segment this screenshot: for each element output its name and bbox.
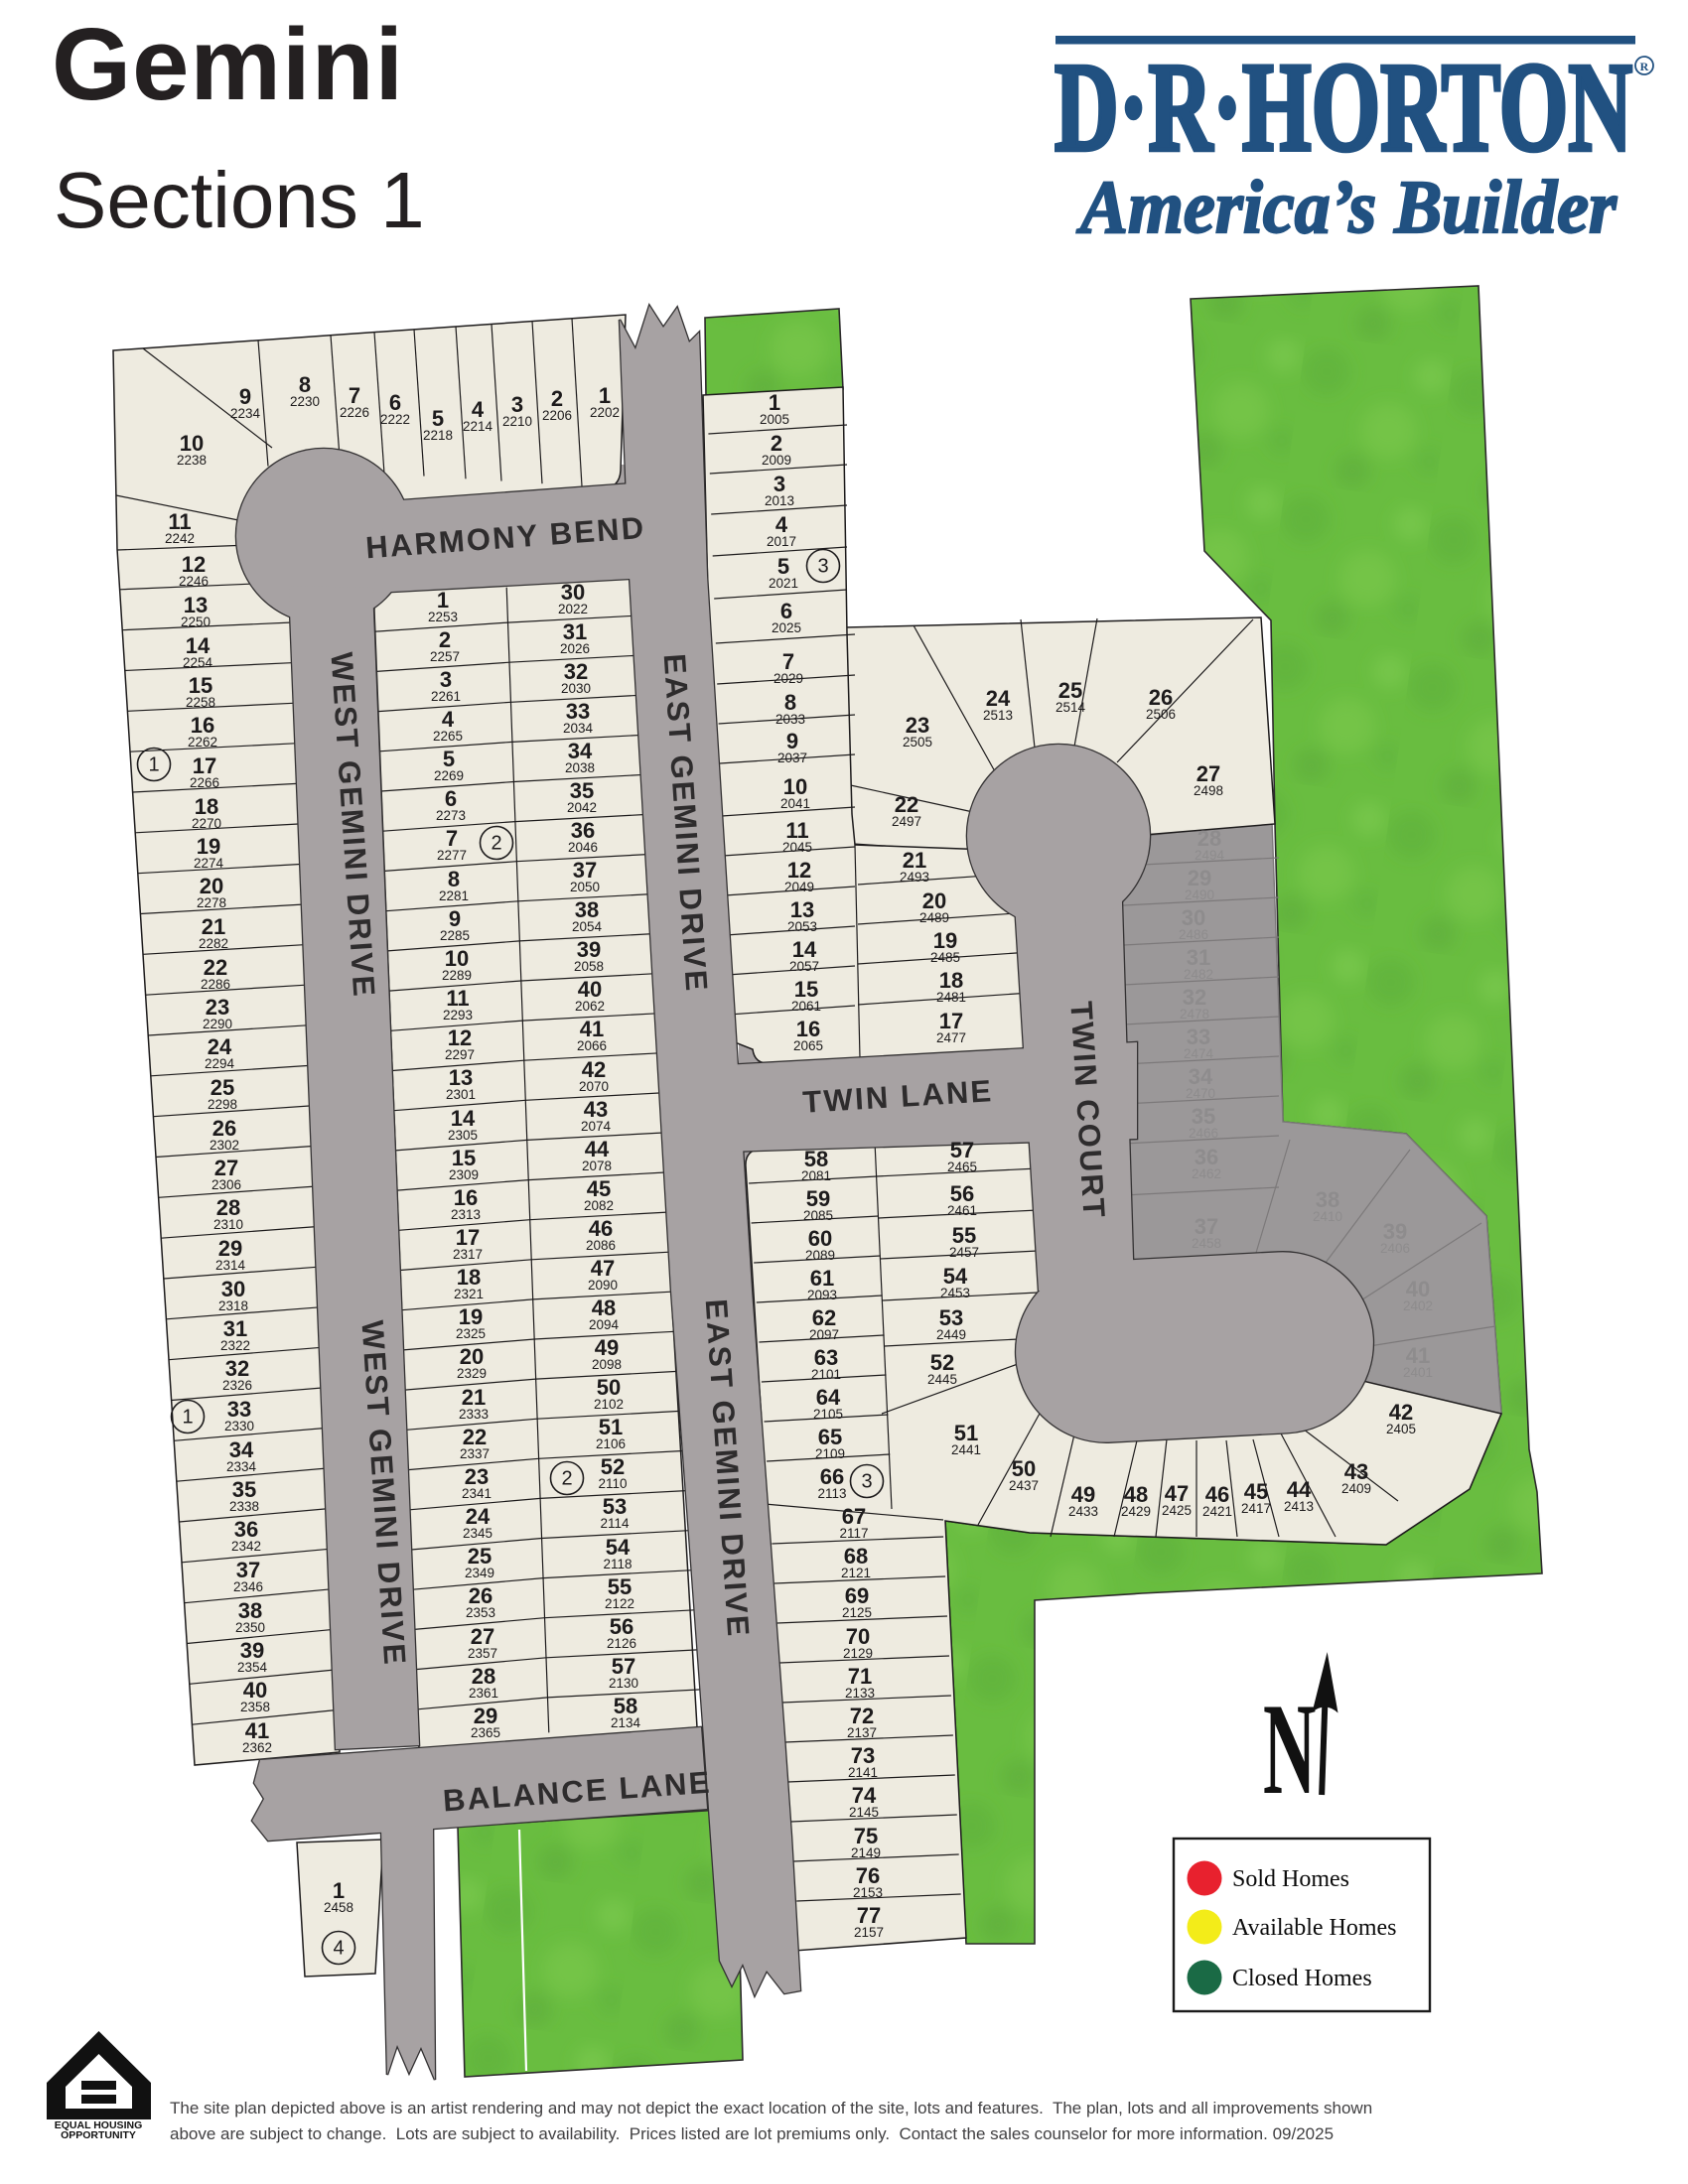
svg-text:2329: 2329 [457,1366,487,1381]
svg-text:2005: 2005 [760,412,789,427]
svg-text:2506: 2506 [1146,707,1176,722]
svg-text:2458: 2458 [1192,1236,1221,1251]
svg-text:2234: 2234 [230,406,261,421]
svg-text:above are subject to change.: above are subject to change. Lots are su… [170,2124,1334,2143]
svg-text:2022: 2022 [558,602,588,616]
svg-text:2113: 2113 [817,1486,846,1501]
svg-text:2433: 2433 [1068,1504,1098,1519]
svg-text:2310: 2310 [213,1217,243,1232]
svg-text:Sold Homes: Sold Homes [1232,1866,1349,1892]
svg-text:2282: 2282 [199,936,228,951]
svg-text:2365: 2365 [471,1725,500,1740]
svg-text:2498: 2498 [1194,783,1223,798]
svg-text:2317: 2317 [453,1247,483,1262]
svg-text:2097: 2097 [809,1327,839,1342]
svg-text:2286: 2286 [201,977,230,992]
svg-text:2145: 2145 [849,1805,879,1820]
svg-text:2302: 2302 [210,1138,239,1153]
svg-text:2306: 2306 [211,1177,241,1192]
svg-text:2345: 2345 [463,1526,492,1541]
svg-text:2334: 2334 [226,1459,257,1474]
svg-text:2289: 2289 [442,968,472,983]
svg-text:2033: 2033 [775,712,805,727]
svg-text:1: 1 [182,1407,193,1429]
svg-text:2354: 2354 [237,1660,268,1675]
svg-text:R: R [1640,60,1649,73]
svg-text:2062: 2062 [575,999,605,1014]
svg-text:Available Homes: Available Homes [1232,1915,1397,1941]
svg-text:2353: 2353 [466,1605,495,1620]
svg-text:2474: 2474 [1184,1046,1214,1061]
svg-text:2326: 2326 [222,1378,252,1393]
svg-text:2053: 2053 [787,919,817,934]
svg-text:2445: 2445 [927,1372,957,1387]
svg-text:2277: 2277 [437,848,467,863]
svg-text:2126: 2126 [607,1636,636,1651]
svg-text:2129: 2129 [843,1646,873,1661]
svg-text:2009: 2009 [762,453,791,468]
svg-text:2513: 2513 [983,708,1013,723]
svg-text:2298: 2298 [208,1097,237,1112]
svg-text:2466: 2466 [1189,1126,1218,1141]
svg-text:2026: 2026 [560,641,590,656]
svg-text:2266: 2266 [190,775,219,790]
svg-text:2313: 2313 [451,1207,481,1222]
svg-text:2357: 2357 [468,1646,497,1661]
svg-text:2121: 2121 [841,1566,871,1580]
svg-text:2309: 2309 [449,1167,479,1182]
svg-text:2261: 2261 [431,689,461,704]
svg-text:Gemini: Gemini [52,7,404,121]
svg-text:N: N [1263,1678,1316,1823]
svg-text:2497: 2497 [892,814,921,829]
svg-text:2493: 2493 [900,870,929,885]
svg-text:2346: 2346 [233,1579,263,1594]
svg-text:2046: 2046 [568,840,598,855]
svg-text:2130: 2130 [609,1676,638,1691]
svg-text:2421: 2421 [1202,1504,1232,1519]
svg-text:2285: 2285 [440,928,470,943]
svg-text:2269: 2269 [434,768,464,783]
svg-text:2453: 2453 [940,1286,970,1300]
svg-text:2321: 2321 [454,1287,484,1301]
svg-text:2405: 2405 [1386,1422,1416,1436]
svg-text:2250: 2250 [181,614,211,629]
svg-text:2090: 2090 [588,1278,618,1293]
svg-text:2274: 2274 [194,856,224,871]
svg-text:2017: 2017 [767,534,796,549]
svg-text:2230: 2230 [290,394,320,409]
svg-text:3: 3 [817,556,828,578]
svg-text:2070: 2070 [579,1079,609,1094]
svg-text:2094: 2094 [589,1317,620,1332]
svg-text:Sections 1: Sections 1 [54,156,425,244]
svg-text:2114: 2114 [600,1516,630,1531]
svg-text:2054: 2054 [572,919,603,934]
svg-text:2401: 2401 [1403,1365,1433,1380]
svg-text:2133: 2133 [845,1686,875,1701]
svg-text:2461: 2461 [947,1203,977,1218]
svg-text:2265: 2265 [433,729,463,744]
svg-text:2409: 2409 [1341,1481,1371,1496]
svg-text:2025: 2025 [772,620,801,635]
svg-text:2325: 2325 [456,1326,486,1341]
svg-text:2082: 2082 [584,1198,614,1213]
svg-text:2425: 2425 [1162,1503,1192,1518]
svg-text:2429: 2429 [1121,1504,1151,1519]
svg-text:2118: 2118 [603,1557,632,1571]
svg-text:2086: 2086 [586,1238,616,1253]
svg-text:2273: 2273 [436,808,466,823]
svg-text:2226: 2226 [340,405,369,420]
svg-text:2441: 2441 [951,1442,981,1457]
svg-text:2489: 2489 [919,910,949,925]
svg-text:2406: 2406 [1380,1241,1410,1256]
svg-text:OPPORTUNITY: OPPORTUNITY [61,2129,136,2141]
svg-text:2337: 2337 [460,1446,490,1461]
svg-text:2134: 2134 [611,1715,641,1730]
svg-text:2490: 2490 [1185,887,1214,902]
svg-text:2098: 2098 [592,1357,622,1372]
svg-text:2109: 2109 [815,1446,845,1461]
svg-text:2153: 2153 [853,1885,883,1900]
svg-text:2042: 2042 [567,800,597,815]
svg-text:2349: 2349 [465,1566,494,1580]
svg-text:2157: 2157 [854,1925,884,1940]
svg-text:2137: 2137 [847,1725,877,1740]
svg-text:The site plan depicted above i: The site plan depicted above is an artis… [170,2099,1372,2117]
svg-text:2494: 2494 [1195,848,1225,863]
svg-text:2338: 2338 [229,1499,259,1514]
svg-text:2410: 2410 [1313,1209,1342,1224]
svg-text:2061: 2061 [791,999,821,1014]
svg-text:1: 1 [148,754,159,776]
svg-text:2110: 2110 [598,1476,627,1491]
svg-text:2074: 2074 [581,1119,612,1134]
svg-text:2297: 2297 [445,1047,475,1062]
svg-text:2350: 2350 [235,1620,265,1635]
svg-text:2021: 2021 [769,576,798,591]
svg-text:2: 2 [561,1468,572,1490]
svg-text:2013: 2013 [765,493,794,508]
svg-text:3: 3 [861,1471,872,1493]
svg-text:2089: 2089 [805,1248,835,1263]
svg-text:2149: 2149 [851,1845,881,1860]
svg-text:Closed Homes: Closed Homes [1232,1966,1372,1991]
svg-text:2117: 2117 [839,1526,868,1541]
svg-text:2105: 2105 [813,1407,843,1422]
svg-text:2301: 2301 [446,1087,476,1102]
svg-text:2081: 2081 [801,1168,831,1183]
svg-text:2125: 2125 [842,1605,872,1620]
svg-text:2465: 2465 [947,1160,977,1174]
svg-text:2417: 2417 [1241,1501,1271,1516]
svg-text:4: 4 [333,1938,344,1960]
svg-text:2041: 2041 [780,796,810,811]
svg-text:2214: 2214 [463,419,493,434]
svg-text:2281: 2281 [439,888,469,903]
svg-text:2470: 2470 [1186,1086,1215,1101]
svg-text:2038: 2038 [565,760,595,775]
svg-text:2293: 2293 [443,1008,473,1023]
svg-text:2238: 2238 [177,453,207,468]
svg-text:2093: 2093 [807,1288,837,1302]
svg-text:2481: 2481 [936,990,966,1005]
svg-text:2242: 2242 [165,531,195,546]
svg-text:2314: 2314 [215,1258,246,1273]
svg-text:2514: 2514 [1055,700,1086,715]
svg-text:2462: 2462 [1192,1166,1221,1181]
svg-text:2085: 2085 [803,1208,833,1223]
svg-text:2437: 2437 [1009,1478,1039,1493]
svg-text:2078: 2078 [582,1159,612,1173]
svg-text:2478: 2478 [1180,1007,1209,1022]
svg-text:2057: 2057 [789,959,819,974]
svg-text:2254: 2254 [183,655,213,670]
svg-text:2101: 2101 [811,1367,841,1382]
svg-text:2358: 2358 [240,1700,270,1714]
svg-text:2218: 2218 [423,428,453,443]
svg-text:2262: 2262 [188,735,217,750]
svg-text:2: 2 [491,833,501,855]
svg-text:2342: 2342 [231,1539,261,1554]
svg-text:2257: 2257 [430,649,460,664]
svg-text:2222: 2222 [380,412,410,427]
svg-text:2486: 2486 [1179,927,1208,942]
svg-text:2278: 2278 [197,895,226,910]
svg-text:2413: 2413 [1284,1499,1314,1514]
svg-text:2030: 2030 [561,681,591,696]
svg-text:2505: 2505 [903,735,932,750]
svg-text:2333: 2333 [459,1407,489,1422]
svg-text:2330: 2330 [224,1419,254,1433]
svg-text:2045: 2045 [782,840,812,855]
svg-text:2318: 2318 [218,1298,248,1313]
svg-text:2034: 2034 [563,721,594,736]
svg-text:2270: 2270 [192,816,221,831]
svg-text:2050: 2050 [570,880,600,894]
svg-text:2341: 2341 [462,1486,492,1501]
svg-text:2122: 2122 [605,1596,634,1611]
svg-text:2058: 2058 [574,959,604,974]
svg-text:2458: 2458 [324,1900,353,1915]
svg-text:2482: 2482 [1184,967,1213,982]
svg-text:2253: 2253 [428,610,458,624]
svg-text:2402: 2402 [1403,1298,1433,1313]
svg-text:2362: 2362 [242,1740,272,1755]
svg-text:America’s Builder: America’s Builder [1076,166,1618,249]
svg-text:2141: 2141 [848,1765,878,1780]
svg-text:2065: 2065 [793,1038,823,1053]
svg-text:2066: 2066 [577,1038,607,1053]
svg-text:2449: 2449 [936,1327,966,1342]
svg-text:2485: 2485 [930,950,960,965]
svg-text:2106: 2106 [596,1436,626,1451]
svg-text:2102: 2102 [594,1397,624,1412]
svg-text:2202: 2202 [590,405,620,420]
svg-text:2457: 2457 [949,1245,979,1260]
svg-text:2246: 2246 [179,574,209,589]
svg-text:2049: 2049 [784,880,814,894]
svg-text:2322: 2322 [220,1338,250,1353]
svg-text:2029: 2029 [774,671,803,686]
svg-text:2290: 2290 [203,1017,232,1031]
svg-text:2305: 2305 [448,1128,478,1143]
svg-text:2037: 2037 [777,751,807,765]
svg-text:2258: 2258 [186,695,215,710]
svg-text:2206: 2206 [542,408,572,423]
svg-text:2294: 2294 [205,1056,235,1071]
svg-text:2477: 2477 [936,1030,966,1045]
svg-text:D·R·HORTON: D·R·HORTON [1055,37,1632,178]
svg-text:2361: 2361 [469,1686,498,1701]
svg-text:2210: 2210 [502,414,532,429]
